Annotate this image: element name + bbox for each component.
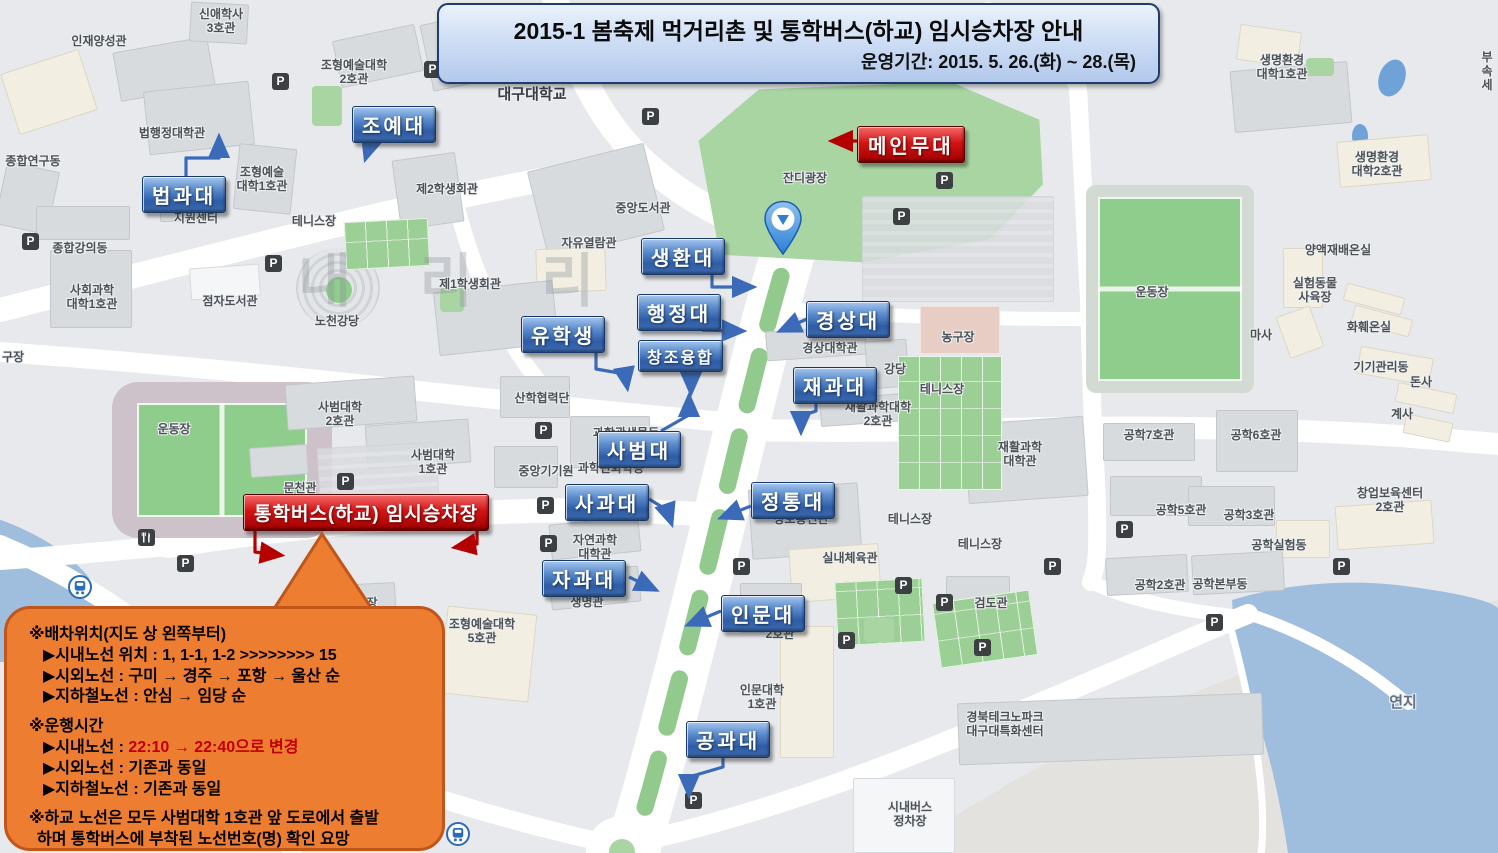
label-jaegwa: 재과대: [793, 367, 877, 404]
label-gonggwa: 공과대: [686, 721, 770, 758]
notice-section: ※하교 노선은 모두 사범대학 1호관 앞 도로에서 출발하며 통학버스에 부착…: [29, 809, 430, 851]
notice-item: ▶시내노선 위치 : 1, 1-1, 1-2 >>>>>>>> 15: [29, 646, 430, 667]
notice-item: ▶시외노선 : 구미 → 경주 → 포항 → 울산 순: [29, 667, 430, 688]
notice-heading: ※하교 노선은 모두 사범대학 1호관 앞 도로에서 출발: [29, 809, 430, 830]
notice-section: ※운행시간▶시내노선 : 22:10 → 22:40으로 변경▶시외노선 : 기…: [29, 717, 430, 800]
notice-item: ▶지하철노선 : 안심 → 임당 순: [29, 687, 430, 708]
label-beopgwa: 법과대: [142, 176, 226, 213]
label-jagwa: 자과대: [542, 560, 626, 597]
notice-section: ※배차위치(지도 상 왼쪽부터)▶시내노선 위치 : 1, 1-1, 1-2 >…: [29, 625, 430, 708]
label-changjo: 창조융합: [638, 340, 723, 372]
notice-bubble-tail: [262, 530, 382, 615]
label-gyeongsang: 경상대: [806, 301, 890, 338]
notice-body: ※배차위치(지도 상 왼쪽부터)▶시내노선 위치 : 1, 1-1, 1-2 >…: [29, 625, 430, 851]
title-banner: 2015-1 봄축제 먹거리촌 및 통학버스(하교) 임시승차장 안내 운영기간…: [437, 3, 1160, 84]
notice-heading: ※운행시간: [29, 717, 430, 738]
notice-item: ▶지하철노선 : 기존과 동일: [29, 780, 430, 801]
label-bus-stop: 통학버스(하교) 임시승차장: [243, 494, 489, 531]
notice-continuation: 하며 통학버스에 부착된 노선번호(명) 확인 요망: [29, 830, 430, 851]
notice-bubble: ※배차위치(지도 상 왼쪽부터)▶시내노선 위치 : 1, 1-1, 1-2 >…: [4, 606, 445, 851]
notice-item-highlight: 22:10 → 22:40으로 변경: [128, 739, 298, 756]
location-pin-icon: [760, 200, 806, 261]
notice-item-prefix: ▶시내노선 :: [43, 739, 128, 756]
label-inmun: 인문대: [721, 595, 805, 632]
page-title: 2015-1 봄축제 먹거리촌 및 통학버스(하교) 임시승차장 안내: [455, 12, 1142, 46]
label-haengjeong: 행정대: [637, 294, 721, 331]
label-sagwa: 사과대: [565, 484, 649, 521]
label-main-stage: 메인무대: [857, 126, 965, 163]
label-yuhaksaeng: 유학생: [521, 316, 605, 353]
notice-item: ▶시내노선 : 22:10 → 22:40으로 변경: [29, 738, 430, 759]
label-saenghwan: 생환대: [641, 238, 725, 275]
label-joye: 조예대: [352, 106, 436, 143]
notice-item: ▶시외노선 : 기존과 동일: [29, 759, 430, 780]
label-jeongtong: 정통대: [751, 482, 835, 519]
operation-period: 운영기간: 2015. 5. 26.(화) ~ 28.(목): [455, 48, 1142, 74]
label-sabeom: 사범대: [597, 431, 681, 468]
notice-heading: ※배차위치(지도 상 왼쪽부터): [29, 625, 430, 646]
festival-map-poster: 내 리 리 인재양성관신애학사 3호관조형예술대학 2호관대구대학교법행정대학관…: [0, 0, 1498, 853]
